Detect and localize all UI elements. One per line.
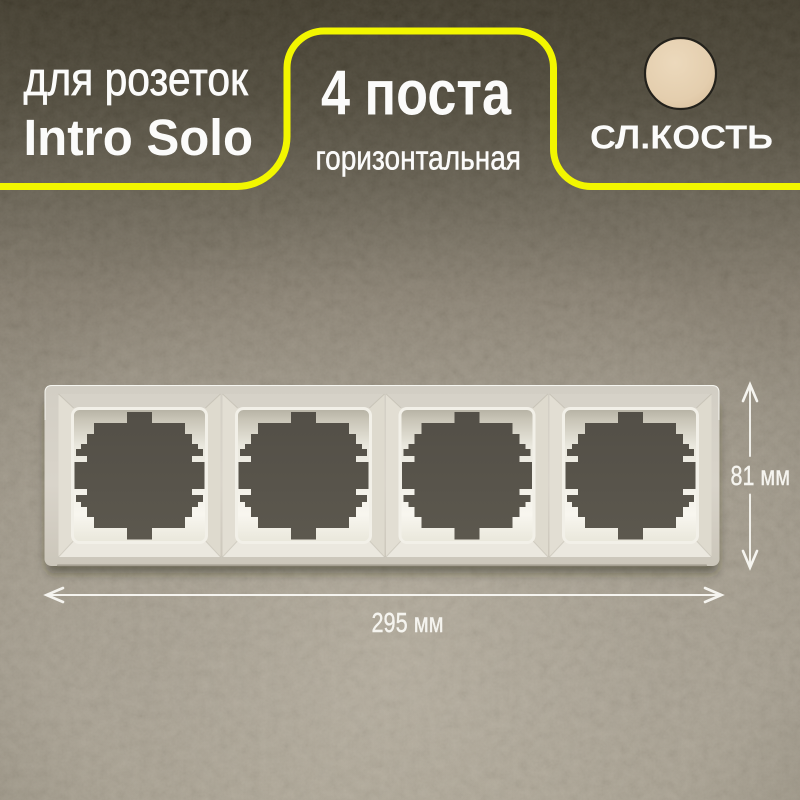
- svg-text:горизонтальная: горизонтальная: [316, 140, 522, 178]
- svg-text:СЛ.КОСТЬ: СЛ.КОСТЬ: [590, 119, 773, 156]
- svg-text:4 поста: 4 поста: [321, 59, 512, 129]
- svg-text:81 мм: 81 мм: [731, 460, 791, 491]
- svg-text:295 мм: 295 мм: [372, 607, 444, 638]
- svg-text:для розеток: для розеток: [24, 52, 249, 105]
- svg-text:Intro Solo: Intro Solo: [24, 109, 254, 166]
